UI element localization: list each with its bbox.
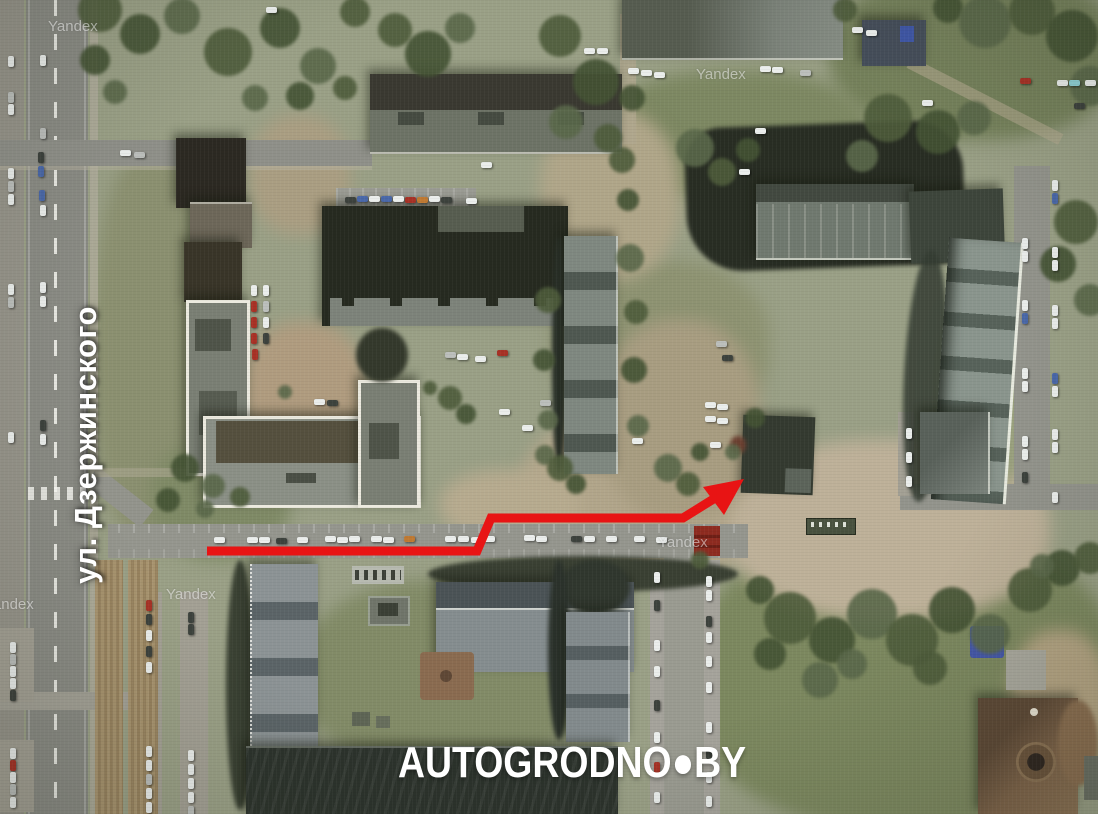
car xyxy=(146,802,152,813)
car xyxy=(247,537,258,543)
car xyxy=(597,48,608,54)
car xyxy=(1022,381,1028,392)
car xyxy=(38,152,44,163)
car xyxy=(457,354,468,360)
car xyxy=(369,196,380,202)
car xyxy=(1022,300,1028,311)
car xyxy=(1085,80,1096,86)
car xyxy=(1074,103,1085,109)
car xyxy=(499,409,510,415)
car xyxy=(8,168,14,179)
car xyxy=(40,296,46,307)
car xyxy=(188,612,194,623)
car xyxy=(252,349,258,360)
car xyxy=(1020,78,1031,84)
car xyxy=(357,196,368,202)
car xyxy=(40,205,46,216)
car xyxy=(475,356,486,362)
car xyxy=(393,196,404,202)
car xyxy=(772,67,783,73)
satellite-map: ул. Дзержинского AUTOGRODNO●BY Yandex Ya… xyxy=(0,0,1098,814)
car xyxy=(906,476,912,487)
car xyxy=(706,616,712,627)
car xyxy=(1022,238,1028,249)
car xyxy=(800,70,811,76)
car xyxy=(1052,180,1058,191)
car xyxy=(445,352,456,358)
car xyxy=(1022,436,1028,447)
car xyxy=(146,760,152,771)
car xyxy=(276,538,287,544)
car xyxy=(706,590,712,601)
car xyxy=(134,152,145,158)
car xyxy=(404,536,415,542)
car xyxy=(571,536,582,542)
car xyxy=(10,654,16,665)
car xyxy=(706,722,712,733)
car xyxy=(10,690,16,701)
car xyxy=(1022,368,1028,379)
car-layer xyxy=(0,0,1098,814)
car xyxy=(8,194,14,205)
car xyxy=(866,30,877,36)
car xyxy=(251,301,257,312)
car xyxy=(584,536,595,542)
car xyxy=(405,197,416,203)
car xyxy=(146,646,152,657)
car xyxy=(10,772,16,783)
car xyxy=(706,632,712,643)
car xyxy=(188,764,194,775)
car xyxy=(146,662,152,673)
car xyxy=(906,452,912,463)
car xyxy=(8,56,14,67)
car xyxy=(716,341,727,347)
car xyxy=(8,297,14,308)
car xyxy=(40,55,46,66)
car xyxy=(314,399,325,405)
car xyxy=(717,404,728,410)
car xyxy=(445,536,456,542)
car xyxy=(722,355,733,361)
car xyxy=(327,400,338,406)
car xyxy=(188,792,194,803)
car xyxy=(706,656,712,667)
car xyxy=(1052,386,1058,397)
car xyxy=(1052,429,1058,440)
car xyxy=(38,166,44,177)
car xyxy=(40,420,46,431)
car xyxy=(40,434,46,445)
car xyxy=(146,788,152,799)
car xyxy=(706,576,712,587)
car xyxy=(10,748,16,759)
car xyxy=(188,806,194,814)
car xyxy=(540,400,551,406)
car xyxy=(522,425,533,431)
car xyxy=(40,282,46,293)
car xyxy=(251,317,257,328)
car xyxy=(345,197,356,203)
car xyxy=(471,537,482,543)
car xyxy=(1022,313,1028,324)
car xyxy=(484,536,495,542)
car xyxy=(146,614,152,625)
car xyxy=(325,536,336,542)
car xyxy=(1052,247,1058,258)
car xyxy=(654,700,660,711)
car xyxy=(706,682,712,693)
car xyxy=(40,128,46,139)
car xyxy=(1052,305,1058,316)
car xyxy=(706,796,712,807)
site-watermark: AUTOGRODNO●BY xyxy=(398,741,746,785)
car xyxy=(852,27,863,33)
car xyxy=(263,285,269,296)
car xyxy=(906,428,912,439)
car xyxy=(497,350,508,356)
car xyxy=(263,333,269,344)
street-name-label: ул. Дзержинского xyxy=(68,306,104,584)
car xyxy=(584,48,595,54)
car xyxy=(641,70,652,76)
car xyxy=(441,197,452,203)
provider-watermark: Yandex xyxy=(166,586,216,603)
car xyxy=(654,72,665,78)
car xyxy=(1069,80,1080,86)
car xyxy=(8,284,14,295)
car xyxy=(654,640,660,651)
car xyxy=(251,333,257,344)
provider-watermark: Yandex xyxy=(0,596,34,613)
car xyxy=(654,666,660,677)
provider-watermark: Yandex xyxy=(658,534,708,551)
car xyxy=(1052,492,1058,503)
car xyxy=(1022,472,1028,483)
car xyxy=(634,536,645,542)
car xyxy=(188,624,194,635)
car xyxy=(1022,251,1028,262)
car xyxy=(1052,193,1058,204)
car xyxy=(1052,318,1058,329)
car xyxy=(429,196,440,202)
car xyxy=(251,285,257,296)
car xyxy=(10,797,16,808)
car xyxy=(10,642,16,653)
car xyxy=(371,536,382,542)
car xyxy=(39,190,45,201)
car xyxy=(337,537,348,543)
car xyxy=(654,572,660,583)
car xyxy=(1052,373,1058,384)
car xyxy=(755,128,766,134)
car xyxy=(120,150,131,156)
car xyxy=(524,535,535,541)
car xyxy=(1022,449,1028,460)
car xyxy=(760,66,771,72)
car xyxy=(632,438,643,444)
car xyxy=(8,92,14,103)
car xyxy=(717,418,728,424)
car xyxy=(466,198,477,204)
car xyxy=(654,600,660,611)
car xyxy=(188,778,194,789)
car xyxy=(922,100,933,106)
car xyxy=(10,760,16,771)
car xyxy=(263,317,269,328)
car xyxy=(214,537,225,543)
car xyxy=(10,784,16,795)
car xyxy=(1052,442,1058,453)
car xyxy=(146,630,152,641)
car xyxy=(259,537,270,543)
car xyxy=(10,666,16,677)
car xyxy=(10,678,16,689)
car xyxy=(381,196,392,202)
car xyxy=(705,402,716,408)
car xyxy=(1052,260,1058,271)
car xyxy=(710,442,721,448)
car xyxy=(146,600,152,611)
car xyxy=(606,536,617,542)
car xyxy=(146,746,152,757)
car xyxy=(263,301,269,312)
car xyxy=(146,774,152,785)
car xyxy=(8,104,14,115)
car xyxy=(383,537,394,543)
car xyxy=(297,537,308,543)
car xyxy=(266,7,277,13)
car xyxy=(8,181,14,192)
car xyxy=(481,162,492,168)
car xyxy=(1057,80,1068,86)
car xyxy=(8,432,14,443)
car xyxy=(536,536,547,542)
car xyxy=(705,416,716,422)
car xyxy=(188,750,194,761)
car xyxy=(739,169,750,175)
car xyxy=(349,536,360,542)
provider-watermark: Yandex xyxy=(48,18,98,35)
car xyxy=(654,792,660,803)
car xyxy=(417,197,428,203)
car xyxy=(458,536,469,542)
car xyxy=(628,68,639,74)
provider-watermark: Yandex xyxy=(696,66,746,83)
